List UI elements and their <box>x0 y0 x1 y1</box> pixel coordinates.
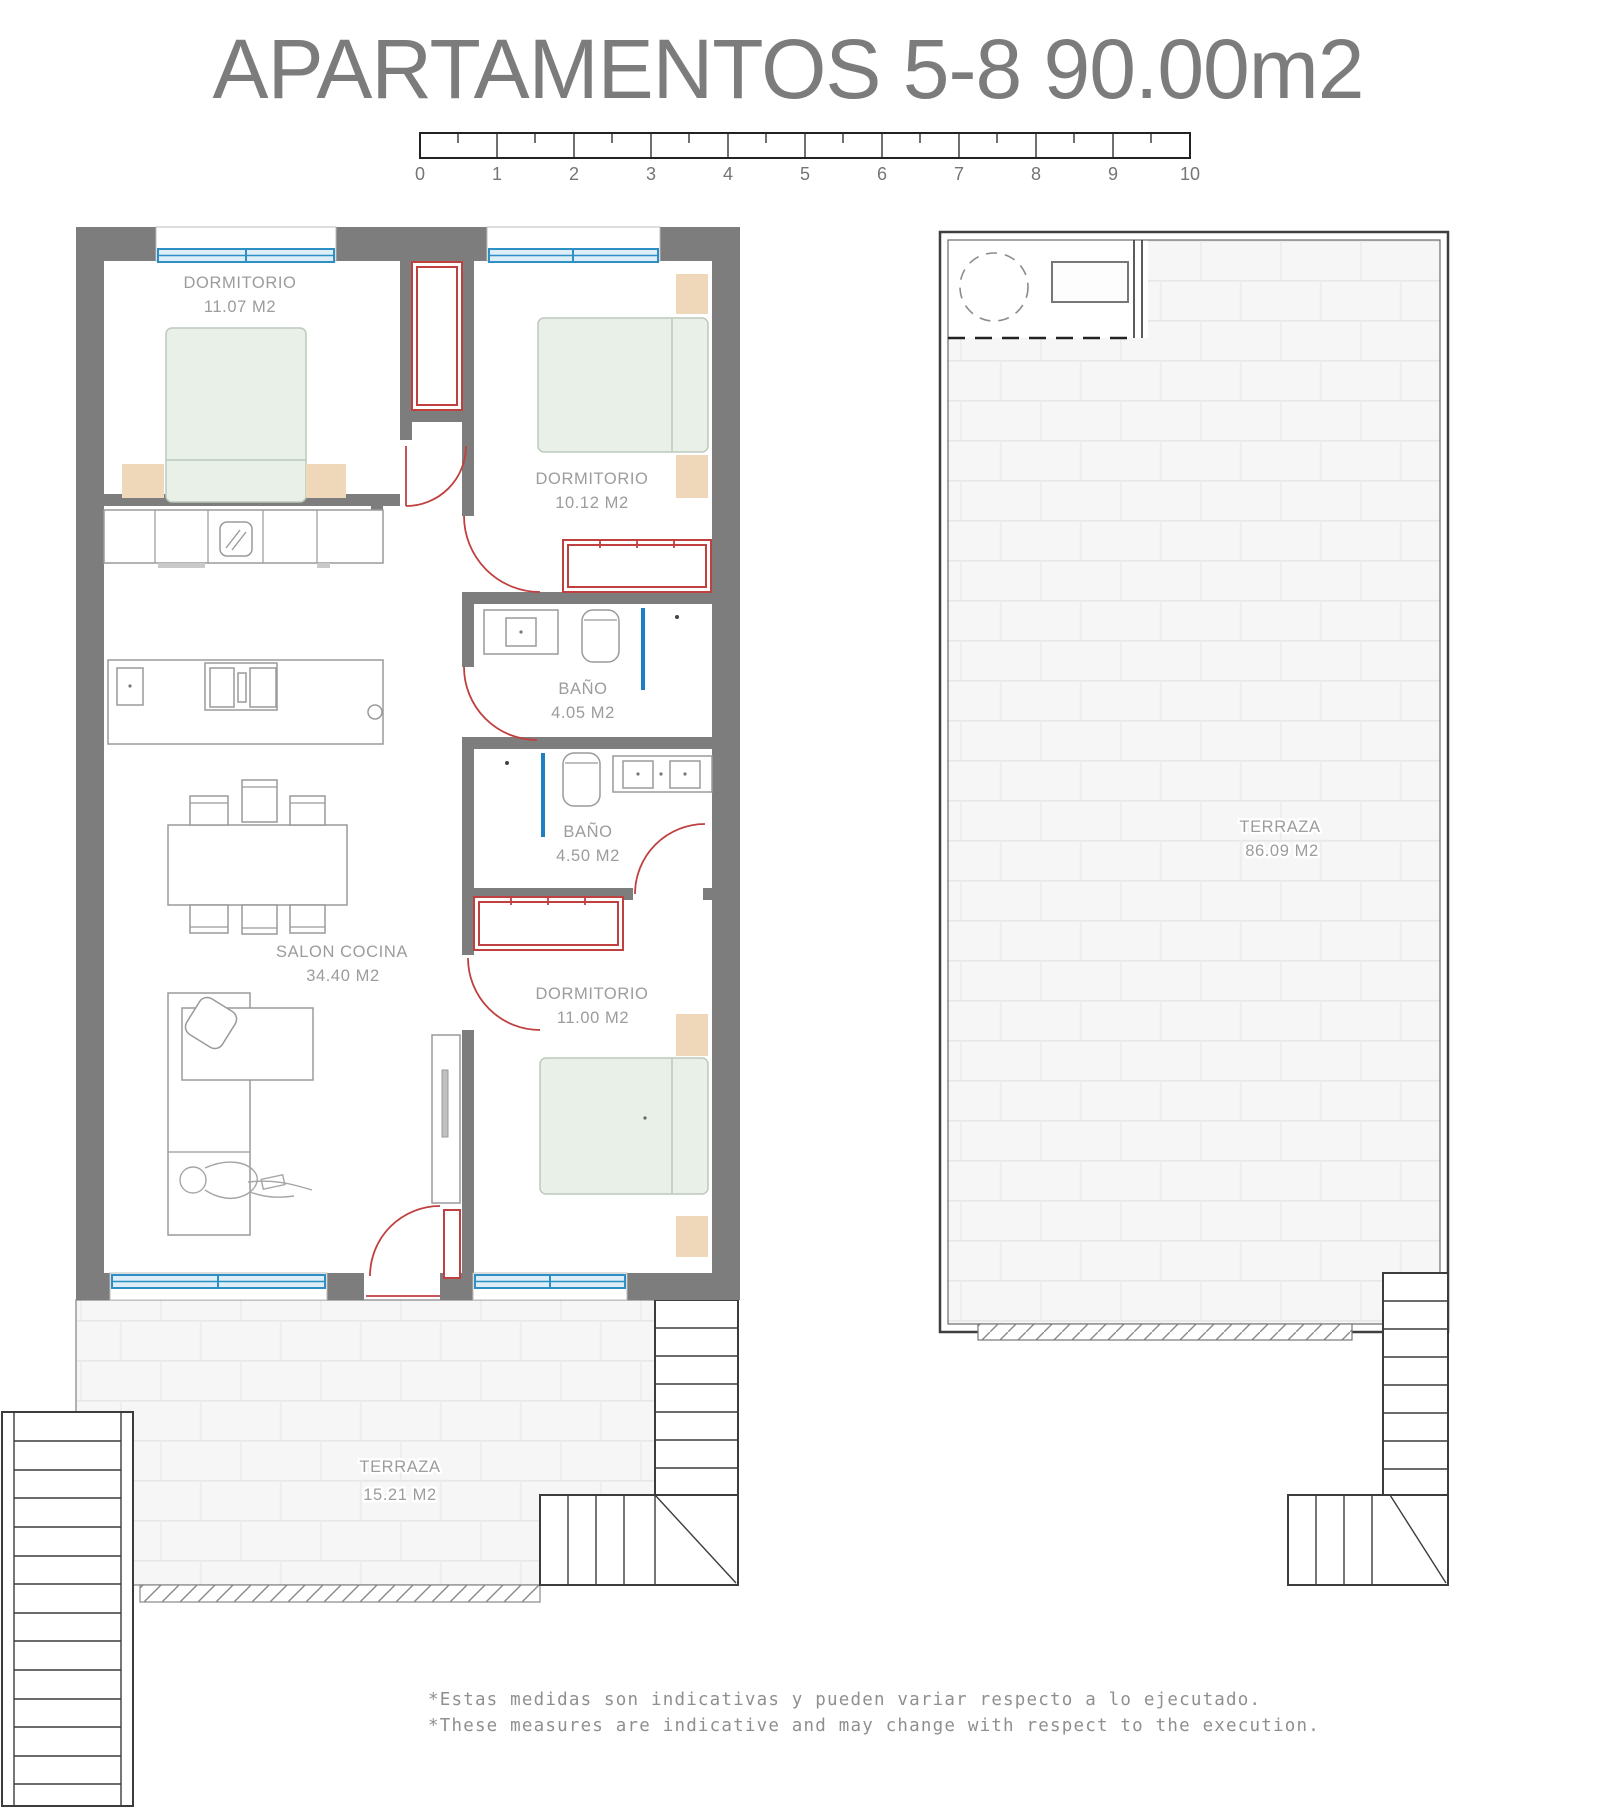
stairs-left-outdoor <box>2 1412 133 1806</box>
svg-text:8: 8 <box>1031 164 1041 184</box>
tv-screen <box>442 1070 448 1137</box>
counter-tab <box>317 563 330 568</box>
floor-plan-page: APARTAMENTOS 5-8 90.00m2 0 1 2 3 4 5 6 7 <box>0 0 1600 1808</box>
window-bottom-bedroom3 <box>473 1273 627 1300</box>
kitchen <box>104 510 383 744</box>
wardrobe-bedroom2 <box>563 540 711 592</box>
bed-3 <box>540 1058 708 1194</box>
svg-text:2: 2 <box>569 164 579 184</box>
svg-text:7: 7 <box>954 164 964 184</box>
window-top-bedroom2 <box>487 227 660 262</box>
terrace-small-hatch-edge <box>140 1585 540 1602</box>
bathroom2-name: BAÑO <box>563 821 612 841</box>
bed-2 <box>538 318 708 452</box>
nightstand <box>676 1216 708 1257</box>
terrace-small-name: TERRAZA <box>359 1458 440 1476</box>
floor-plan-drawing: APARTAMENTOS 5-8 90.00m2 0 1 2 3 4 5 6 7 <box>0 0 1600 1808</box>
dining-table <box>168 825 347 905</box>
bedroom2-area: 10.12 M2 <box>555 494 629 512</box>
toilet <box>563 753 600 806</box>
bedroom3-name: DORMITORIO <box>536 985 649 1003</box>
window-bottom-living <box>110 1273 327 1300</box>
bedroom-3: DORMITORIO 11.00 M2 <box>536 985 708 1257</box>
svg-text:9: 9 <box>1108 164 1118 184</box>
bathroom2-area: 4.50 M2 <box>556 847 620 865</box>
svg-text:4: 4 <box>723 164 733 184</box>
window-top-bedroom1 <box>156 227 336 262</box>
bedroom3-area: 11.00 M2 <box>557 1009 629 1027</box>
svg-text:1: 1 <box>492 164 502 184</box>
svg-text:0: 0 <box>415 164 425 184</box>
footnotes: *Estas medidas son indicativas y pueden … <box>428 1690 1320 1736</box>
note-line-1: *Estas medidas son indicativas y pueden … <box>428 1690 1261 1710</box>
bathroom1-name: BAÑO <box>558 678 607 698</box>
bedroom-2: DORMITORIO 10.12 M2 <box>536 274 708 512</box>
terrace-large-hatch-edge <box>978 1324 1352 1340</box>
counter-tab <box>158 563 205 568</box>
bathroom1-area: 4.05 M2 <box>551 704 615 722</box>
svg-text:3: 3 <box>646 164 656 184</box>
terrace-large-area: 86.09 M2 <box>1245 842 1319 860</box>
svg-text:5: 5 <box>800 164 810 184</box>
bathroom-2: BAÑO 4.50 M2 <box>505 753 712 865</box>
bed-1 <box>166 328 306 502</box>
bathroom-1: BAÑO 4.05 M2 <box>484 608 679 722</box>
nightstand <box>676 1014 708 1056</box>
nightstand <box>676 455 708 498</box>
niche-unit-rect <box>1052 262 1128 302</box>
page-title: APARTAMENTOS 5-8 90.00m2 <box>213 22 1364 116</box>
svg-text:10: 10 <box>1180 164 1200 184</box>
toilet <box>582 610 619 662</box>
terrace-large-name: TERRAZA <box>1239 818 1320 836</box>
living-furniture <box>168 993 460 1235</box>
bedroom1-name: DORMITORIO <box>184 274 297 292</box>
note-line-2: *These measures are indicative and may c… <box>428 1716 1320 1736</box>
terrace-door-leaf <box>444 1210 460 1278</box>
bedroom1-area: 11.07 M2 <box>204 298 276 316</box>
nightstand <box>122 464 164 498</box>
living-area: 34.40 M2 <box>306 967 380 985</box>
svg-text:6: 6 <box>877 164 887 184</box>
bedroom2-name: DORMITORIO <box>536 470 649 488</box>
bedroom-1: DORMITORIO 11.07 M2 <box>122 274 346 502</box>
terrace-large: TERRAZA 86.09 M2 <box>940 232 1448 1585</box>
nightstand <box>676 274 708 314</box>
cooktop-icon <box>220 522 252 556</box>
wardrobe-bedroom3 <box>474 897 623 950</box>
wardrobe-hall <box>412 262 462 410</box>
nightstand <box>306 464 346 498</box>
terrace-small-area: 15.21 M2 <box>363 1486 437 1504</box>
scale-bar: 0 1 2 3 4 5 6 7 8 9 10 <box>415 133 1200 184</box>
living-name: SALON COCINA <box>276 943 408 961</box>
dining-set: SALON COCINA 34.40 M2 <box>168 780 408 985</box>
scale-bar-numbers: 0 1 2 3 4 5 6 7 8 9 10 <box>415 164 1200 184</box>
kitchen-island <box>108 660 383 744</box>
